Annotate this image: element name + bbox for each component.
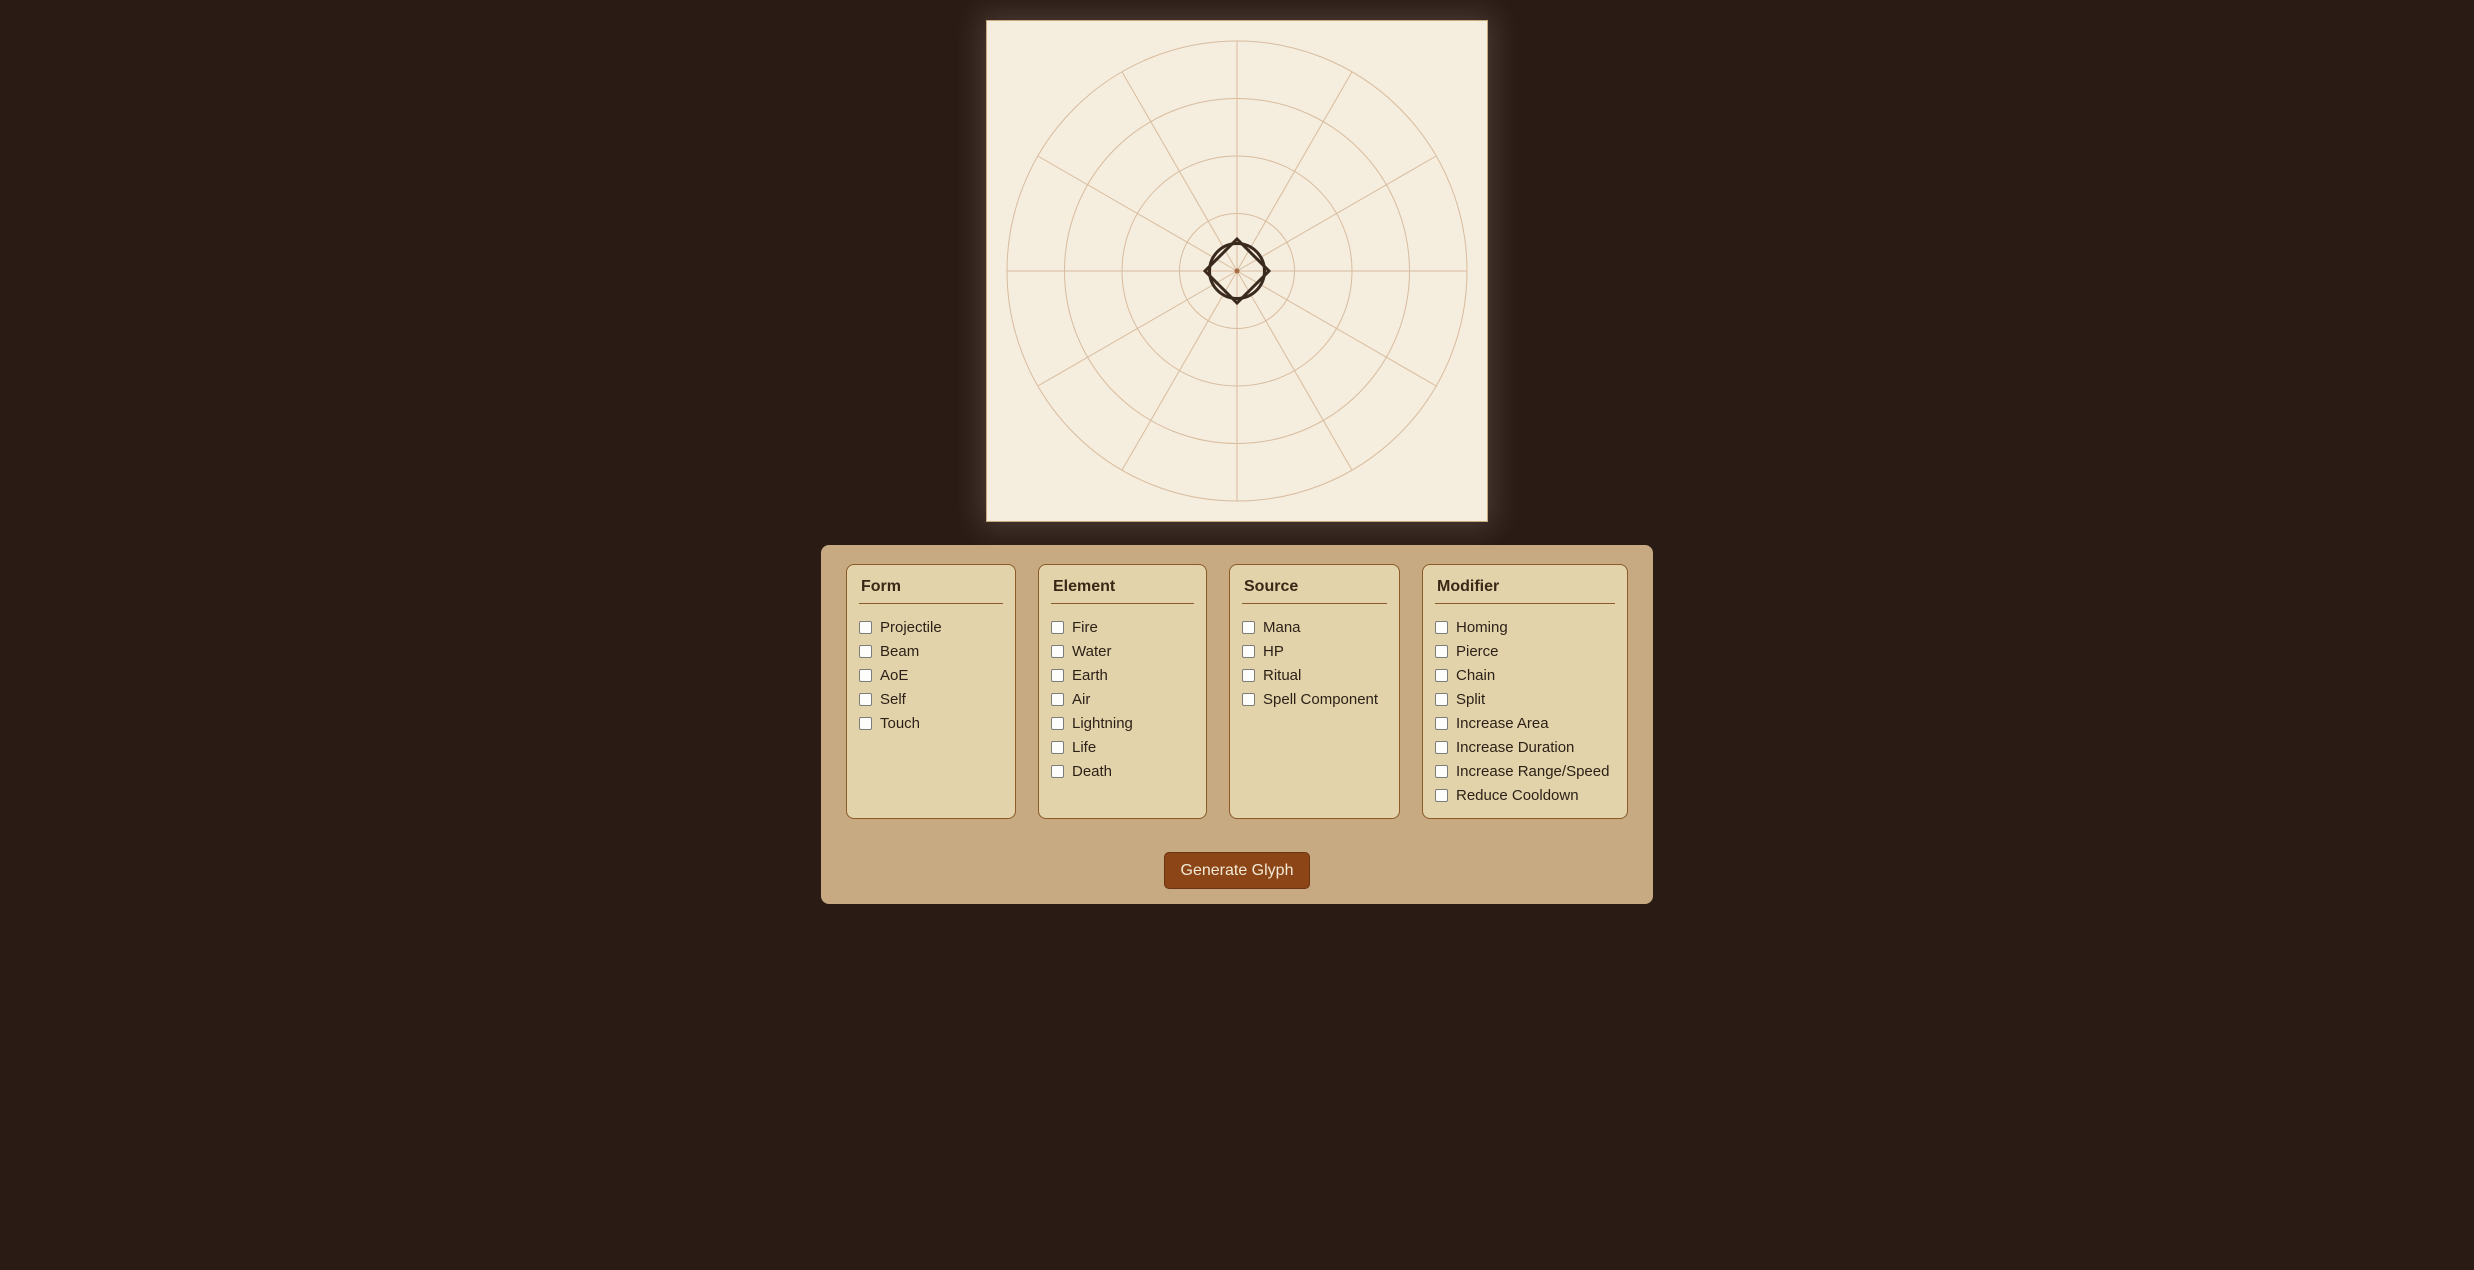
button-row: Generate Glyph	[846, 852, 1628, 889]
group-divider	[859, 603, 1003, 604]
option-label: Spell Component	[1263, 691, 1378, 708]
grid-spoke	[1122, 72, 1237, 271]
option-checkbox[interactable]	[859, 693, 872, 706]
option-checkbox[interactable]	[859, 717, 872, 730]
option-row[interactable]: Self	[859, 687, 1003, 711]
option-checkbox[interactable]	[1051, 717, 1064, 730]
group-form: FormProjectileBeamAoESelfTouch	[846, 564, 1016, 819]
option-checkbox[interactable]	[1051, 669, 1064, 682]
group-divider	[1051, 603, 1194, 604]
option-checkbox[interactable]	[1051, 621, 1064, 634]
option-row[interactable]: Increase Range/Speed	[1435, 759, 1615, 783]
group-divider	[1242, 603, 1387, 604]
option-label: Death	[1072, 763, 1112, 780]
option-checkbox[interactable]	[1435, 669, 1448, 682]
option-row[interactable]: Water	[1051, 639, 1194, 663]
group-title: Source	[1244, 578, 1387, 596]
option-checkbox[interactable]	[1242, 621, 1255, 634]
option-label: Lightning	[1072, 715, 1133, 732]
glyph-canvas	[986, 20, 1488, 522]
option-checkbox[interactable]	[1051, 693, 1064, 706]
option-label: Life	[1072, 739, 1096, 756]
option-checkbox[interactable]	[859, 669, 872, 682]
option-checkbox[interactable]	[1435, 645, 1448, 658]
option-row[interactable]: Increase Duration	[1435, 735, 1615, 759]
option-checkbox[interactable]	[1435, 693, 1448, 706]
option-row[interactable]: HP	[1242, 639, 1387, 663]
option-label: Touch	[880, 715, 920, 732]
grid-spoke	[1237, 271, 1436, 386]
option-checkbox[interactable]	[859, 621, 872, 634]
option-row[interactable]: Touch	[859, 711, 1003, 735]
option-label: Mana	[1263, 619, 1301, 636]
option-row[interactable]: Lightning	[1051, 711, 1194, 735]
group-title: Element	[1053, 578, 1194, 596]
option-checkbox[interactable]	[1242, 645, 1255, 658]
option-label: HP	[1263, 643, 1284, 660]
grid-spoke	[1122, 271, 1237, 470]
option-groups-row: FormProjectileBeamAoESelfTouchElementFir…	[846, 564, 1628, 819]
option-row[interactable]: Reduce Cooldown	[1435, 783, 1615, 807]
option-label: Chain	[1456, 667, 1495, 684]
control-panel: FormProjectileBeamAoESelfTouchElementFir…	[821, 545, 1653, 904]
option-label: Split	[1456, 691, 1485, 708]
option-label: Earth	[1072, 667, 1108, 684]
option-label: Reduce Cooldown	[1456, 787, 1579, 804]
glyph-center-dot	[1235, 269, 1240, 274]
option-checkbox[interactable]	[1051, 765, 1064, 778]
generate-glyph-button[interactable]: Generate Glyph	[1164, 852, 1311, 889]
option-row[interactable]: Chain	[1435, 663, 1615, 687]
option-checkbox[interactable]	[1051, 741, 1064, 754]
option-row[interactable]: Death	[1051, 759, 1194, 783]
group-divider	[1435, 603, 1615, 604]
option-checkbox[interactable]	[1435, 717, 1448, 730]
option-row[interactable]: Homing	[1435, 615, 1615, 639]
option-checkbox[interactable]	[1242, 693, 1255, 706]
option-row[interactable]: Ritual	[1242, 663, 1387, 687]
grid-spoke	[1237, 156, 1436, 271]
group-title: Form	[861, 578, 1003, 596]
option-label: Beam	[880, 643, 919, 660]
option-row[interactable]: Split	[1435, 687, 1615, 711]
option-label: Increase Duration	[1456, 739, 1574, 756]
group-title: Modifier	[1437, 578, 1615, 596]
option-row[interactable]: Life	[1051, 735, 1194, 759]
option-label: Air	[1072, 691, 1090, 708]
option-label: AoE	[880, 667, 908, 684]
option-label: Projectile	[880, 619, 942, 636]
option-label: Water	[1072, 643, 1111, 660]
option-row[interactable]: AoE	[859, 663, 1003, 687]
option-label: Pierce	[1456, 643, 1499, 660]
option-checkbox[interactable]	[1051, 645, 1064, 658]
option-row[interactable]: Pierce	[1435, 639, 1615, 663]
option-label: Increase Range/Speed	[1456, 763, 1609, 780]
option-checkbox[interactable]	[1435, 621, 1448, 634]
grid-spoke	[1237, 271, 1352, 470]
option-row[interactable]: Air	[1051, 687, 1194, 711]
option-row[interactable]: Spell Component	[1242, 687, 1387, 711]
option-row[interactable]: Mana	[1242, 615, 1387, 639]
option-row[interactable]: Fire	[1051, 615, 1194, 639]
option-checkbox[interactable]	[1242, 669, 1255, 682]
option-label: Increase Area	[1456, 715, 1549, 732]
group-modifier: ModifierHomingPierceChainSplitIncrease A…	[1422, 564, 1628, 819]
grid-spoke	[1038, 271, 1237, 386]
option-checkbox[interactable]	[859, 645, 872, 658]
group-source: SourceManaHPRitualSpell Component	[1229, 564, 1400, 819]
option-row[interactable]: Beam	[859, 639, 1003, 663]
option-label: Homing	[1456, 619, 1508, 636]
option-label: Fire	[1072, 619, 1098, 636]
glyph-canvas-wrapper	[986, 20, 1488, 522]
option-checkbox[interactable]	[1435, 741, 1448, 754]
option-checkbox[interactable]	[1435, 765, 1448, 778]
option-row[interactable]: Increase Area	[1435, 711, 1615, 735]
option-row[interactable]: Earth	[1051, 663, 1194, 687]
app-stage: FormProjectileBeamAoESelfTouchElementFir…	[0, 0, 2474, 904]
option-label: Ritual	[1263, 667, 1301, 684]
option-row[interactable]: Projectile	[859, 615, 1003, 639]
option-checkbox[interactable]	[1435, 789, 1448, 802]
group-element: ElementFireWaterEarthAirLightningLifeDea…	[1038, 564, 1207, 819]
option-label: Self	[880, 691, 906, 708]
grid-spoke	[1038, 156, 1237, 271]
grid-spoke	[1237, 72, 1352, 271]
